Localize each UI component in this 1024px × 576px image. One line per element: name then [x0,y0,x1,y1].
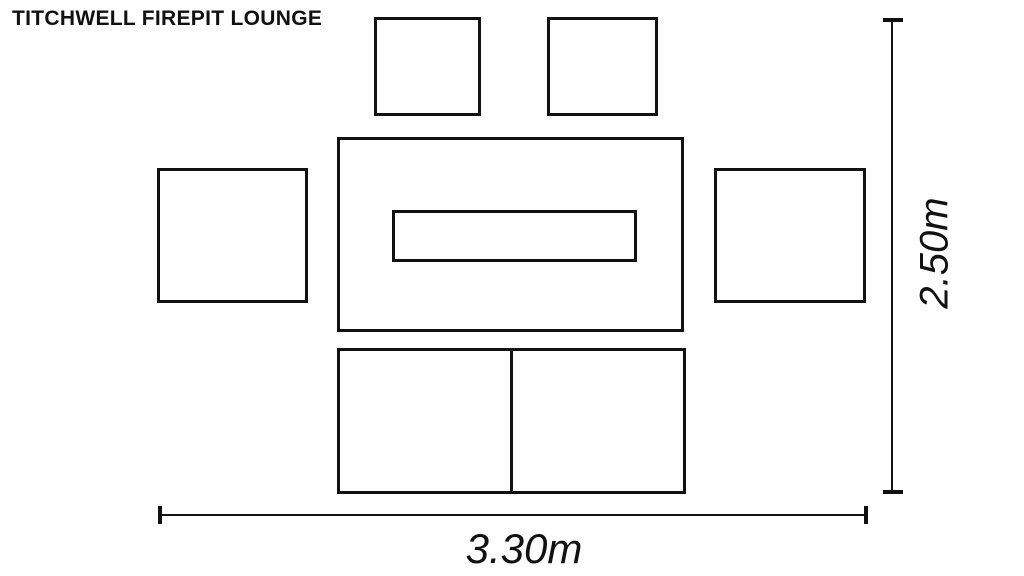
firepit-table-outline [337,137,684,332]
width-dimension-cap-left [158,506,162,524]
chair-right-outline [714,168,866,303]
height-dimension-cap-bottom [883,490,903,494]
floor-plan-canvas: TITCHWELL FIREPIT LOUNGE 2.50m 3.30m [0,0,1024,576]
stool-top-right-outline [547,17,658,116]
firepit-opening-outline [392,210,637,262]
height-dimension-line [891,20,893,492]
sofa-seat-divider [510,351,513,491]
two-seat-sofa-outline [337,348,686,494]
width-dimension-line [159,514,867,516]
chair-left-outline [157,168,308,303]
height-dimension-cap-top [883,18,903,22]
stool-top-left-outline [374,17,481,116]
page-title: TITCHWELL FIREPIT LOUNGE [12,7,322,31]
width-dimension-cap-right [864,506,868,524]
height-dimension-label: 2.50m [913,197,958,308]
width-dimension-label: 3.30m [466,525,583,573]
